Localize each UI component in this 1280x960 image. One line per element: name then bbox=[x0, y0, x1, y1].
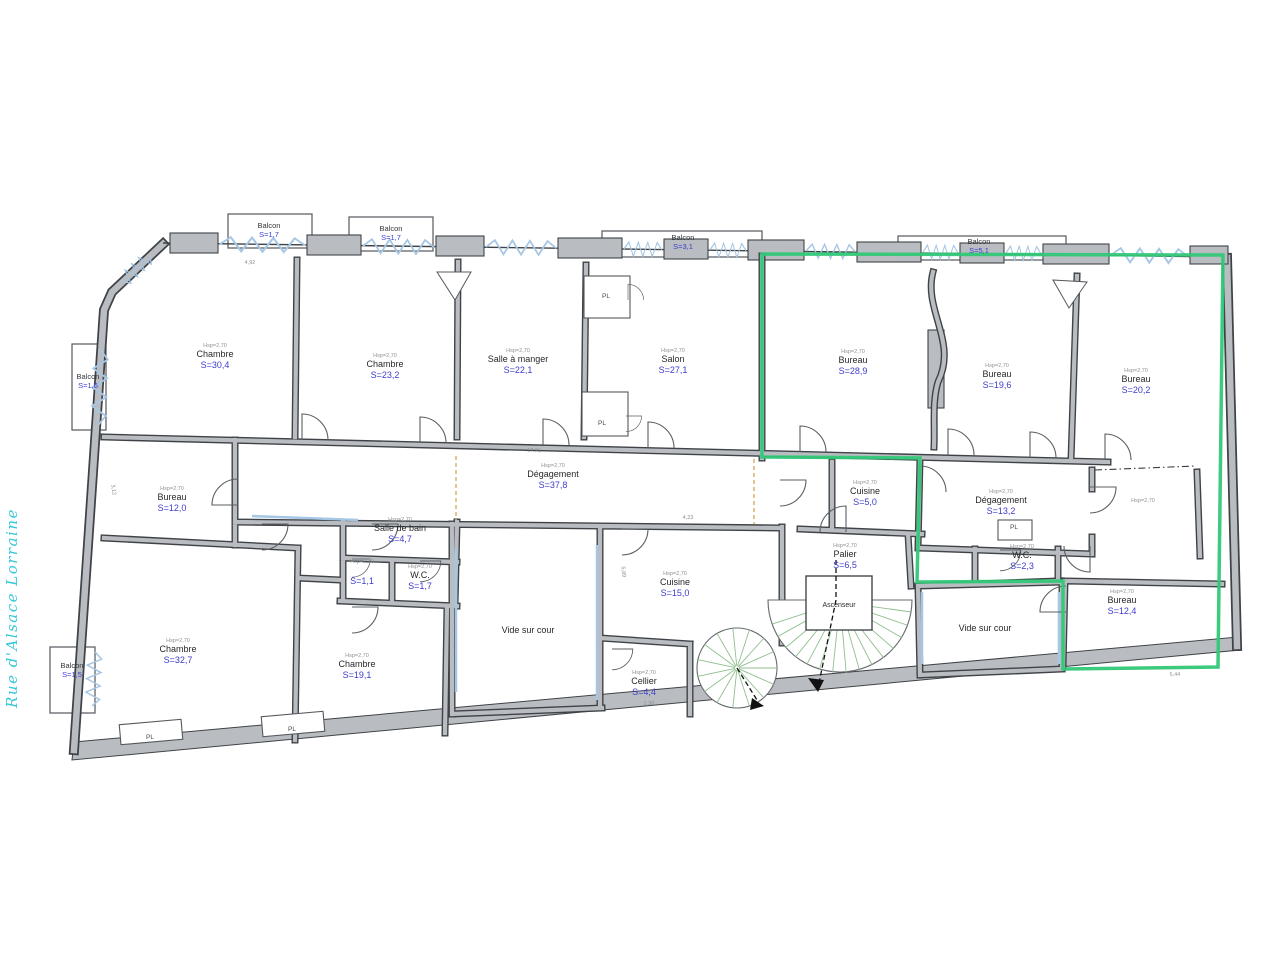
room-name: Palier bbox=[833, 549, 856, 559]
room-area: S=32,7 bbox=[164, 655, 193, 665]
closet-label: PL bbox=[602, 293, 610, 300]
room-area: S=1,7 bbox=[408, 581, 432, 591]
room-name: Bureau bbox=[982, 369, 1011, 379]
room-area: S=12,0 bbox=[158, 503, 187, 513]
room-name: Cellier bbox=[631, 676, 657, 686]
balcony-area: S=1,6 bbox=[78, 381, 98, 390]
balcony-name: Balcon bbox=[258, 221, 281, 230]
closet-label: PL bbox=[598, 420, 606, 427]
room-name: W.C. bbox=[410, 570, 430, 580]
dimension-label: 5,89 bbox=[620, 566, 627, 577]
room-area: S=22,1 bbox=[504, 365, 533, 375]
room-name: Bureau bbox=[838, 355, 867, 365]
dimension-label: 2,30 bbox=[643, 701, 654, 708]
balcony-name: Balcon bbox=[968, 237, 991, 246]
room-area: S=27,1 bbox=[659, 365, 688, 375]
dimension-label: 4,92 bbox=[245, 260, 256, 266]
room-area: S=23,2 bbox=[371, 370, 400, 380]
room-name: Dégagement bbox=[975, 495, 1027, 505]
balcony-area: S=1,7 bbox=[259, 230, 279, 239]
balcony-area: S=1,7 bbox=[381, 233, 401, 242]
floor-plan-canvas: Rue d'Alsace Lorraine Hsp=2,70ChambreS=3… bbox=[0, 0, 1280, 960]
floor-plan-drawing: Rue d'Alsace Lorraine Hsp=2,70ChambreS=3… bbox=[0, 0, 1280, 960]
room-name: Chambre bbox=[159, 644, 196, 654]
dimension-label: 17,71 bbox=[527, 448, 541, 454]
room-name: Bureau bbox=[1107, 595, 1136, 605]
room-name: Vide sur cour bbox=[502, 625, 555, 635]
closet-label: PL bbox=[288, 726, 296, 733]
balcony-area: S=1,5 bbox=[62, 670, 82, 679]
room-area: S=4,7 bbox=[388, 534, 412, 544]
room-area: S=13,2 bbox=[987, 506, 1016, 516]
balcony-name: Balcon bbox=[672, 233, 695, 242]
room-area: S=19,6 bbox=[983, 380, 1012, 390]
room-area: S=19,1 bbox=[343, 670, 372, 680]
room-area: S=28,9 bbox=[839, 366, 868, 376]
room-name: Salle de bain bbox=[374, 523, 426, 533]
room-name: W.C. bbox=[1012, 550, 1032, 560]
street-name-label: Rue d'Alsace Lorraine bbox=[3, 508, 21, 709]
room-name: Vide sur cour bbox=[959, 623, 1012, 633]
room-name: Bureau bbox=[1121, 374, 1150, 384]
room-height-note: Hsp=2,70 bbox=[1131, 498, 1155, 504]
room-name: Chambre bbox=[366, 359, 403, 369]
room-name: Salle à manger bbox=[488, 354, 549, 364]
room-area: S=4,4 bbox=[632, 687, 656, 697]
room-name: Cuisine bbox=[660, 577, 690, 587]
room-area: S=20,2 bbox=[1122, 385, 1151, 395]
room-area: S=2,3 bbox=[1010, 561, 1034, 571]
room-height-note: Hsp=2,70 bbox=[350, 559, 374, 565]
balcony-name: Balcon bbox=[77, 372, 100, 381]
room-area: S=5,0 bbox=[853, 497, 877, 507]
room-name: Cuisine bbox=[850, 486, 880, 496]
room-name: Dégagement bbox=[527, 469, 579, 479]
room-area: S=1,1 bbox=[350, 576, 374, 586]
dimension-label: 4,23 bbox=[683, 515, 694, 521]
balcony-area: S=3,1 bbox=[673, 242, 693, 251]
room-name: Ascenseur bbox=[822, 602, 856, 609]
room-area: S=30,4 bbox=[201, 360, 230, 370]
room-name: Chambre bbox=[338, 659, 375, 669]
balcony-name: Balcon bbox=[61, 661, 84, 670]
balcony-area: S=5,1 bbox=[969, 246, 989, 255]
room-area: S=15,0 bbox=[661, 588, 690, 598]
closet-label: PL bbox=[1010, 524, 1018, 531]
room-name: Chambre bbox=[196, 349, 233, 359]
room-area: S=37,8 bbox=[539, 480, 568, 490]
room-area: S=12,4 bbox=[1108, 606, 1137, 616]
closet-label: PL bbox=[146, 734, 154, 741]
balcony-name: Balcon bbox=[380, 224, 403, 233]
dimension-label: 5,44 bbox=[1170, 672, 1181, 678]
room-name: Bureau bbox=[157, 492, 186, 502]
room-area: S=6,5 bbox=[833, 560, 857, 570]
room-name: Salon bbox=[661, 354, 684, 364]
